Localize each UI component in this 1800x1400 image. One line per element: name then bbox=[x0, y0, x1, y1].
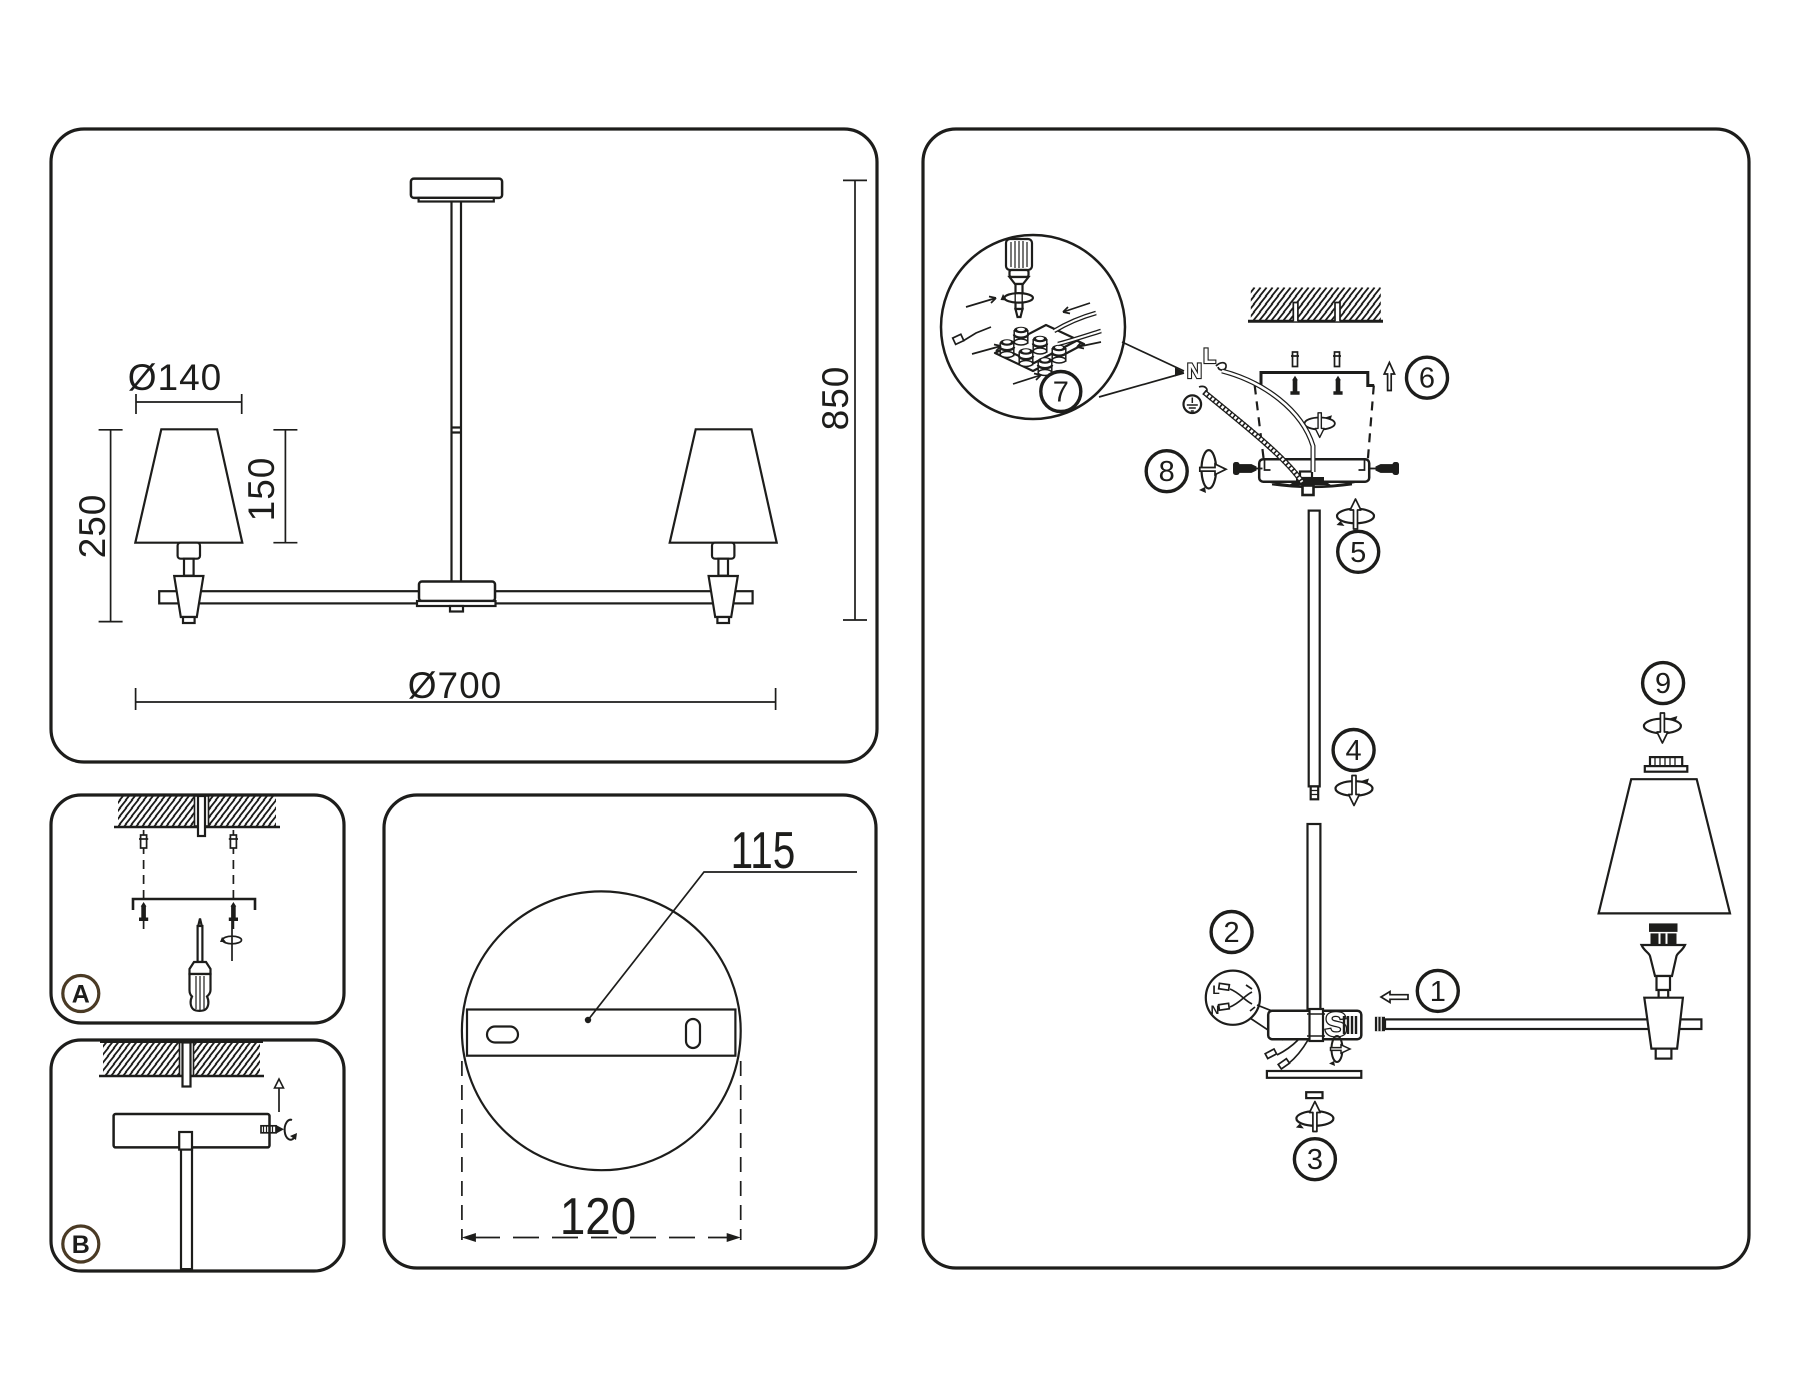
svg-text:A: A bbox=[72, 981, 90, 1009]
svg-text:9: 9 bbox=[1655, 668, 1671, 700]
svg-text:850: 850 bbox=[815, 366, 856, 431]
svg-text:Ø140: Ø140 bbox=[128, 357, 223, 398]
svg-text:1: 1 bbox=[1430, 976, 1446, 1008]
svg-text:150: 150 bbox=[241, 457, 282, 522]
svg-text:B: B bbox=[72, 1231, 90, 1259]
svg-text:6: 6 bbox=[1419, 363, 1435, 395]
svg-text:Ø700: Ø700 bbox=[408, 665, 503, 706]
svg-text:3: 3 bbox=[1307, 1144, 1323, 1176]
svg-text:N: N bbox=[1187, 360, 1202, 383]
svg-text:L: L bbox=[1203, 345, 1216, 368]
svg-text:2: 2 bbox=[1224, 917, 1240, 949]
svg-text:8: 8 bbox=[1159, 456, 1175, 488]
svg-text:120: 120 bbox=[560, 1188, 636, 1245]
svg-text:5: 5 bbox=[1350, 537, 1366, 569]
svg-text:250: 250 bbox=[72, 494, 113, 559]
svg-text:7: 7 bbox=[1053, 377, 1069, 409]
svg-text:4: 4 bbox=[1346, 735, 1362, 767]
svg-text:115: 115 bbox=[731, 821, 796, 879]
